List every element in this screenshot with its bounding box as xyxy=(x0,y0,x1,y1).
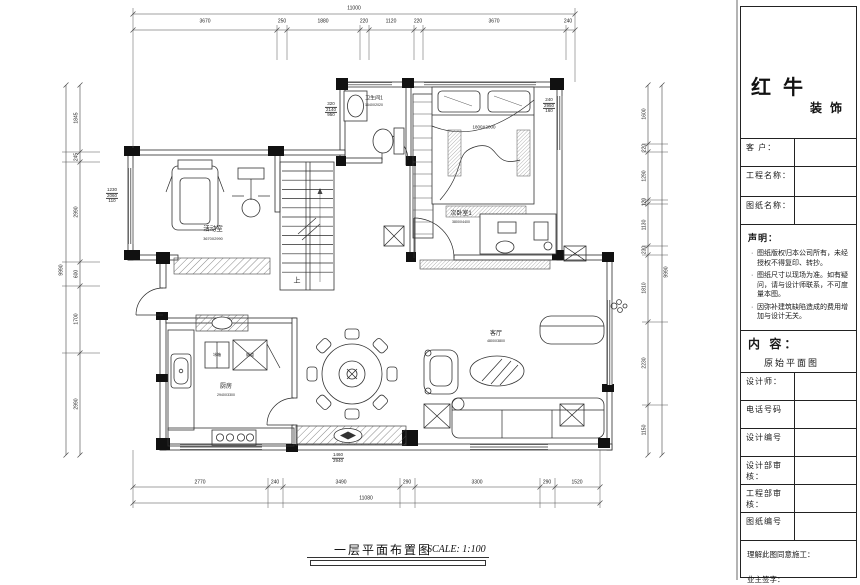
exercise-machine xyxy=(238,168,264,179)
drawing-no-value xyxy=(795,513,856,540)
project-name-row: 工程名称： xyxy=(741,166,856,196)
kitchen-fixtures xyxy=(168,315,294,446)
dim-left: 245 xyxy=(74,153,79,161)
dim-right: 230 xyxy=(642,246,647,254)
statement-item: 图纸尺寸以现场为准。如有疑问，请与设计师联系，不可度量本图。 xyxy=(751,271,852,300)
dim-right: 120 xyxy=(642,198,647,206)
dim-left: 1845 xyxy=(74,112,79,123)
window-callout: 14602940 xyxy=(332,453,344,463)
signature-section: 理解此图同意施工： 业主签字： xyxy=(741,540,856,578)
room-size-bathroom1: 1640X2020 xyxy=(365,104,383,108)
dim-bottom: 2770 xyxy=(194,480,205,485)
dim-right: 2230 xyxy=(642,357,647,368)
room-size-living: 4800X3800 xyxy=(487,340,505,344)
brand-name-cn: 红牛 xyxy=(751,71,815,100)
dim-bottom: 290 xyxy=(403,480,411,485)
title-block: 红牛 装饰 客 户： 工程名称： 图纸名称： 声明： 图纸版权归本公司所有，未经… xyxy=(740,6,857,578)
client-label: 客 户： xyxy=(741,139,795,166)
dim-right: 1130 xyxy=(642,220,647,231)
statement-heading: 声明： xyxy=(748,231,852,244)
title-underline-bar xyxy=(310,560,486,566)
window-callout: 2402950160 xyxy=(543,98,555,114)
armchair xyxy=(424,350,458,394)
sheet-scale: SCALE: 1:100 xyxy=(427,544,486,555)
dim-bottom: 3300 xyxy=(471,480,482,485)
dim-left-total: 9990 xyxy=(59,264,64,275)
design-no-label: 设计编号 xyxy=(741,429,795,456)
room-label-living: 客厅 xyxy=(490,331,502,337)
wall-plant xyxy=(611,300,627,313)
design-audit-row: 设计部审核： xyxy=(741,456,856,484)
dim-right: 1810 xyxy=(642,282,647,293)
dim-top: 250 xyxy=(278,19,286,24)
coffee-table xyxy=(470,356,524,386)
eng-audit-row: 工程部审核： xyxy=(741,484,856,512)
counter-bottom xyxy=(168,428,294,446)
designer-value xyxy=(795,373,856,400)
dim-top: 3670 xyxy=(488,19,499,24)
client-row: 客 户： xyxy=(741,138,856,166)
brand-area: 红牛 装饰 xyxy=(741,7,856,138)
window-callout: 12302060110 xyxy=(106,188,118,204)
content-heading: 内 容： xyxy=(748,335,856,352)
phone-row: 电话号码 xyxy=(741,400,856,428)
brand-suffix-cn: 装饰 xyxy=(810,99,850,116)
room-label-kitchen: 厨房 xyxy=(220,384,232,390)
flue-label: 烟道 xyxy=(246,353,254,357)
design-audit-value xyxy=(795,457,856,484)
dim-top-total: 11000 xyxy=(347,6,361,11)
window-callout: 3202140950 xyxy=(325,102,337,118)
statement-item: 因弥补建筑缺陷造成的费用增加与设计无关。 xyxy=(751,303,852,322)
dim-right: 1600 xyxy=(642,108,647,119)
drawing-no-label: 图纸编号 xyxy=(741,513,795,540)
dim-bottom: 3490 xyxy=(335,480,346,485)
porch-hatch xyxy=(174,258,270,274)
sheet-title: 一层平面布置图 xyxy=(334,541,432,558)
dining-table xyxy=(307,329,397,419)
designer-row: 设计师： xyxy=(741,372,856,400)
project-name-value xyxy=(795,167,856,196)
dim-top: 1120 xyxy=(386,19,397,24)
room-size-bedroom1: 3800X4400 xyxy=(452,221,470,225)
hall-cabinet xyxy=(384,226,404,246)
dim-top: 240 xyxy=(564,19,572,24)
dim-top: 220 xyxy=(414,19,422,24)
title-underline xyxy=(307,557,489,558)
stairs xyxy=(280,162,334,290)
sofa-small xyxy=(540,316,604,344)
dim-bottom: 240 xyxy=(271,480,279,485)
toilet-tank xyxy=(394,128,404,154)
bed-size-label: 1800X2000 xyxy=(472,126,495,131)
stairs-up-label: 上 xyxy=(294,277,301,284)
room-label-bathroom1: 卫生间1 xyxy=(365,96,383,101)
room-size-activity: 3670X2990 xyxy=(203,237,222,241)
fridge-label: 冰箱 xyxy=(213,353,221,357)
content-section: 内 容： 原始平面图 xyxy=(741,330,856,372)
toilet-bowl xyxy=(373,129,393,153)
treadmill xyxy=(172,166,218,230)
drawing-name-label: 图纸名称： xyxy=(741,197,795,224)
statement-list: 图纸版权归本公司所有，未经授权不得复印、转抄。 图纸尺寸以现场为准。如有疑问，请… xyxy=(748,249,852,322)
dim-top: 220 xyxy=(360,19,368,24)
phone-value xyxy=(795,401,856,428)
stove xyxy=(212,430,256,445)
dim-left: 2990 xyxy=(74,206,79,217)
counter-left xyxy=(168,330,194,430)
client-value xyxy=(795,139,856,166)
dim-left: 2990 xyxy=(74,398,79,409)
designer-label: 设计师： xyxy=(741,373,795,400)
drawing-name-value xyxy=(795,197,856,224)
dim-bottom-total: 11080 xyxy=(359,496,373,501)
construction-agree-label: 理解此图同意施工： xyxy=(747,549,856,560)
eng-audit-label: 工程部审核： xyxy=(741,485,795,512)
content-value: 原始平面图 xyxy=(764,356,856,369)
drawing-no-row: 图纸编号 xyxy=(741,512,856,540)
phone-label: 电话号码 xyxy=(741,401,795,428)
dim-right: 220 xyxy=(642,144,647,152)
dim-bottom: 1520 xyxy=(571,480,582,485)
dim-right: 1290 xyxy=(642,170,647,181)
room-label-bedroom1: 次卧室1 xyxy=(450,211,471,217)
room-label-activity: 活动室 xyxy=(203,227,223,234)
gym-equipment xyxy=(166,160,270,230)
statement-item: 图纸版权归本公司所有，未经授权不得复印、转抄。 xyxy=(751,249,852,268)
design-no-row: 设计编号 xyxy=(741,428,856,456)
dim-right-total: 9990 xyxy=(664,266,669,277)
room-size-kitchen: 2940X3300 xyxy=(217,394,235,398)
design-audit-label: 设计部审核： xyxy=(741,457,795,484)
statement-section: 声明： 图纸版权归本公司所有，未经授权不得复印、转抄。 图纸尺寸以现场为准。如有… xyxy=(741,224,856,330)
dim-right: 1150 xyxy=(642,425,647,436)
dim-bottom: 290 xyxy=(543,480,551,485)
dim-left: 600 xyxy=(74,270,79,278)
drawing-name-row: 图纸名称： xyxy=(741,196,856,224)
dim-top: 1880 xyxy=(317,19,328,24)
eng-audit-value xyxy=(795,485,856,512)
dim-left: 1700 xyxy=(74,313,79,324)
dim-top: 3670 xyxy=(199,19,210,24)
floor-plan-drawing xyxy=(0,0,860,580)
project-name-label: 工程名称： xyxy=(741,167,795,196)
design-no-value xyxy=(795,429,856,456)
